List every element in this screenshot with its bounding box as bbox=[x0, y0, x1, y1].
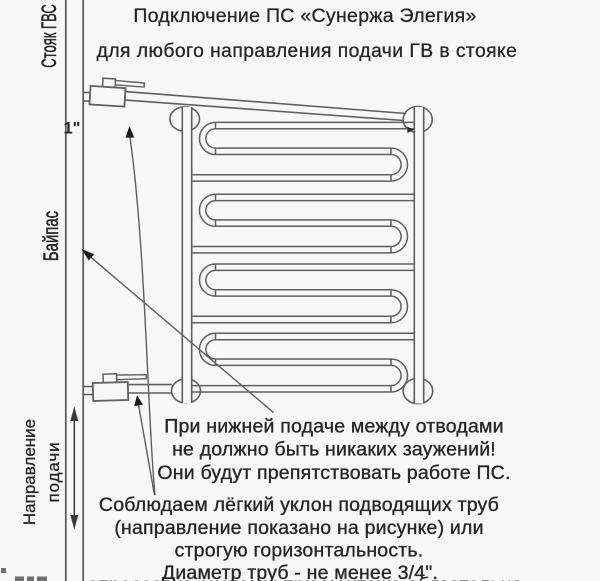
svg-text:Стояк ГВС: Стояк ГВС bbox=[37, 4, 61, 68]
svg-text:опрессовка системы при монтаже: опрессовка системы при монтаже обязатель… bbox=[87, 574, 523, 581]
svg-text:При нижней подаче между отвода: При нижней подаче между отводами bbox=[164, 416, 503, 438]
svg-text:Подключение ПС «Сунержа Элегия: Подключение ПС «Сунержа Элегия» bbox=[133, 5, 476, 27]
svg-text:для любого направления подачи: для любого направления подачи ГВ в стояк… bbox=[97, 41, 518, 62]
svg-text:строгую горизонтальность.: строгую горизонтальность. bbox=[175, 540, 424, 562]
svg-text:(направление показано на рисун: (направление показано на рисунке) или bbox=[114, 517, 483, 539]
svg-text:Направление: Направление bbox=[20, 419, 39, 525]
svg-text:Они будут препятствовать работ: Они будут препятствовать работе ПС. bbox=[157, 462, 510, 484]
svg-text:Байпас: Байпас bbox=[40, 211, 63, 261]
svg-text:Соблюдаем лёгкий уклон подводя: Соблюдаем лёгкий уклон подводящих труб bbox=[99, 494, 499, 516]
svg-text:подачи: подачи bbox=[44, 441, 63, 502]
svg-text:не должно быть никаких заужени: не должно быть никаких заужений! bbox=[172, 439, 496, 461]
svg-text:1": 1" bbox=[64, 120, 81, 138]
